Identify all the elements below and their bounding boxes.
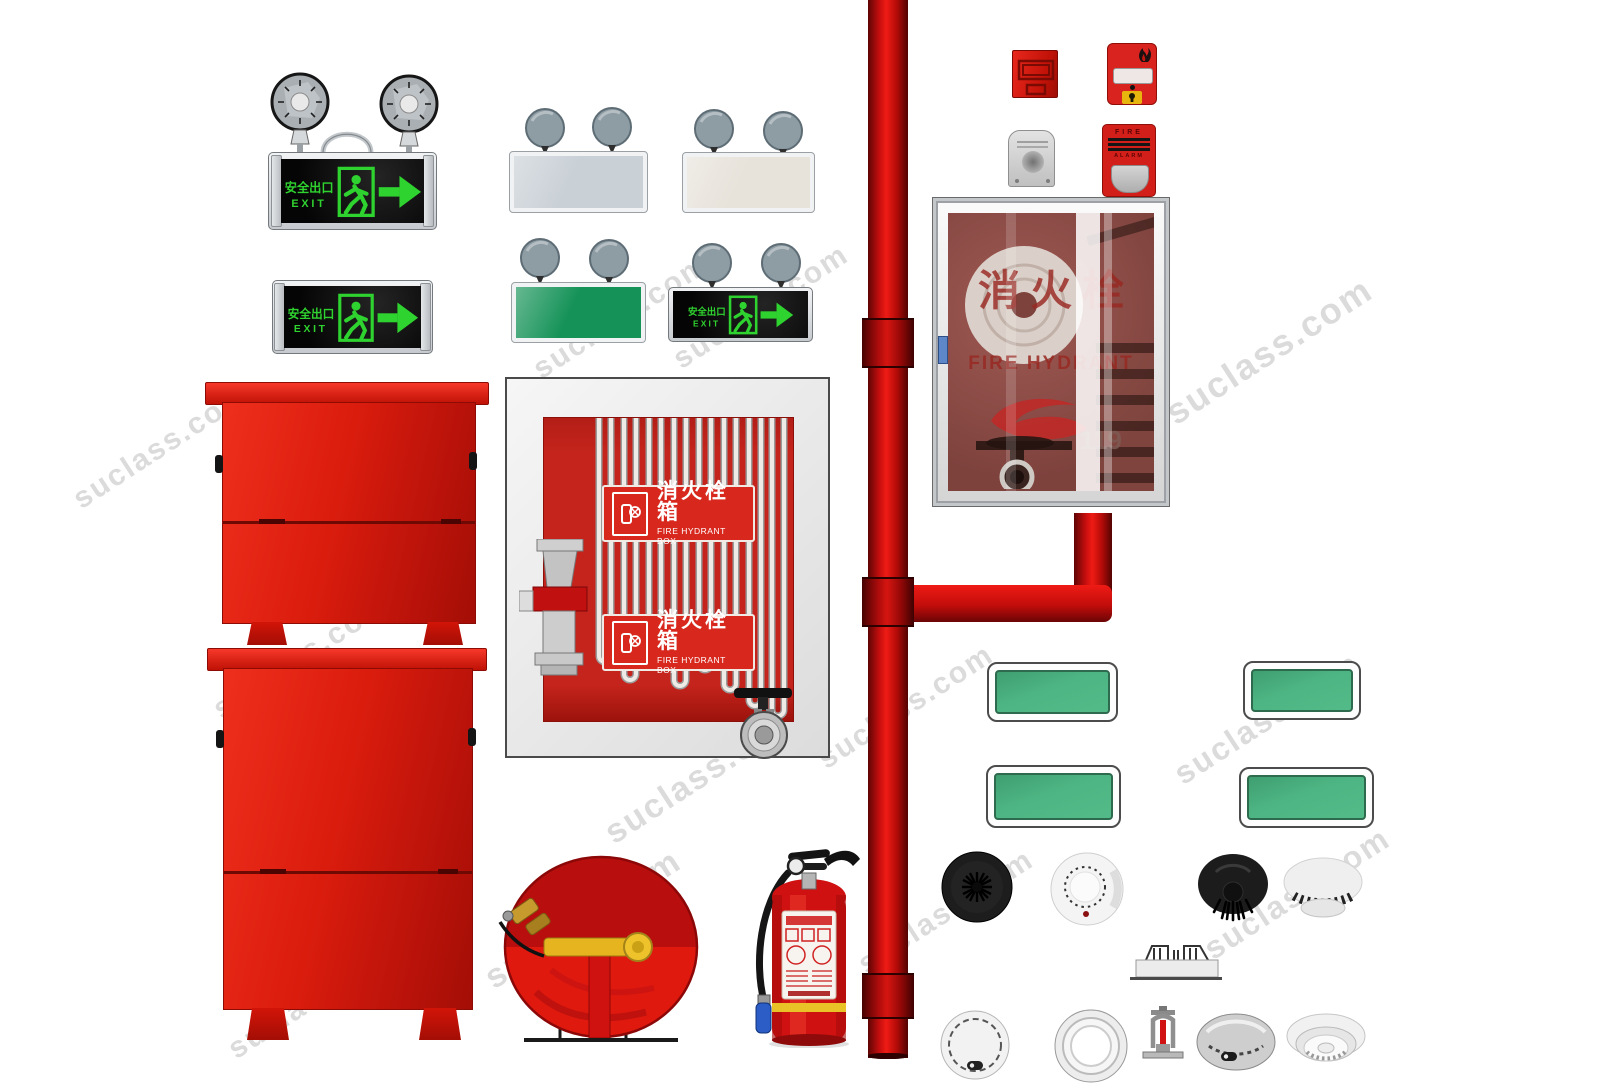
concealed-sprinkler-plate [1128, 938, 1224, 984]
twin-spotlight-exit-light: 安全出口 EXIT [268, 152, 437, 230]
hydrant-label-icon [612, 492, 648, 536]
lamp-dome-icon [523, 107, 567, 157]
panel-sheen [516, 287, 641, 338]
extinguisher-glyph-icon [619, 499, 641, 529]
strobe-fire-label: FIRE [1103, 129, 1155, 136]
pipe-coupling [862, 318, 914, 368]
watermark: suclass.com [1158, 269, 1381, 434]
twin-lamp-panel-gray [510, 152, 647, 212]
fire-hose-reel [496, 852, 706, 1058]
cabinet-handle [215, 455, 223, 473]
glass-cabinet-interior: 消火栓 FIRE HYDRANT 119 [948, 213, 1154, 491]
red-fire-cabinet-tall [207, 648, 485, 1040]
smoke-detector-round [939, 1009, 1011, 1081]
sign-endcap [423, 155, 434, 227]
pipe-branch-horizontal [880, 585, 1112, 622]
lamp-dome-icon [587, 238, 631, 288]
fire-alarm-strobe: FIRE ALARM [1102, 124, 1156, 197]
exit-sign-en: EXIT [291, 198, 326, 210]
cabinet-hinge [441, 519, 461, 524]
strobe-lens [1111, 165, 1149, 193]
green-sign-face [1251, 669, 1353, 712]
lamp-dome-icon [690, 242, 734, 292]
green-blank-sign [1239, 767, 1374, 828]
exit-sign-cn: 安全出口 [285, 180, 334, 195]
cabinet-hinge [260, 869, 286, 874]
smoke-detector-side-view [1282, 856, 1364, 922]
cabinet-leg [247, 1008, 289, 1040]
pipe-coupling [862, 973, 914, 1019]
smoke-detector-rings [1054, 1009, 1128, 1083]
cabinet-handle [216, 730, 224, 748]
cabinet-hinge [438, 869, 458, 874]
strobe-slot [1108, 148, 1150, 151]
hydrant-label-text: 消火栓箱 FIRE HYDRANT BOX [657, 481, 745, 546]
sign-endcap [420, 283, 431, 351]
exit-sign-face: 安全出口 EXIT [673, 291, 808, 338]
cabinet-hinge [259, 519, 285, 524]
hydrant-box-label: 消火栓箱 FIRE HYDRANT BOX [602, 485, 755, 542]
extinguisher-glyph-icon [619, 628, 641, 658]
green-blank-sign [986, 765, 1121, 828]
glass-reflection [1006, 213, 1016, 491]
fire-hydrant-glass-cabinet: 消火栓 FIRE HYDRANT 119 [932, 197, 1170, 507]
green-sign-face [994, 773, 1113, 820]
flame-icon [1132, 46, 1154, 64]
hydrant-box-label: 消火栓箱 FIRE HYDRANT BOX [602, 614, 755, 671]
green-blank-sign [1243, 661, 1361, 720]
hydrant-cabinet-cn: 消火栓 [948, 257, 1154, 318]
cabinet-handle [468, 728, 476, 746]
cover-emblem [1022, 151, 1044, 173]
green-blank-sign [987, 662, 1118, 722]
exit-sign-face: 安全出口 EXIT [284, 286, 421, 348]
lamp-dome-icon [759, 242, 803, 292]
lamp-dome-icon [518, 237, 562, 287]
fire-riser-pipe [868, 0, 908, 1058]
exit-sign-cn: 安全出口 [688, 306, 726, 317]
upright-sprinkler [1139, 1006, 1187, 1064]
hydrant-cabinet-en: FIRE HYDRANT [948, 353, 1154, 375]
cabinet-body [222, 402, 476, 624]
panel-sheen [687, 157, 810, 208]
reset-key-button [1122, 91, 1142, 104]
call-point-window [1113, 68, 1153, 84]
smoke-detector-dome-gray [1195, 1012, 1277, 1072]
glass-reflection [1076, 213, 1100, 491]
fire-alarm-pull-station [1107, 43, 1157, 105]
green-sign-face [1247, 775, 1366, 820]
cabinet-leg [419, 1008, 461, 1040]
cabinet-latch [938, 336, 948, 364]
pipe-end-cap [868, 1053, 908, 1059]
twin-lamp-panel-green [512, 283, 645, 342]
lamp-dome-icon [590, 106, 634, 156]
pendant-sprinkler-black [1196, 852, 1270, 924]
exit-sign-en: EXIT [294, 324, 328, 335]
panel-sheen [514, 156, 643, 208]
exit-sign-face: 安全出口 EXIT [281, 159, 424, 223]
exit-pictogram: 安全出口 EXIT [281, 159, 422, 221]
twin-lamp-panel-ivory [683, 153, 814, 212]
hydrant-label-text: 消火栓箱 FIRE HYDRANT BOX [657, 610, 745, 675]
pipe-tee-coupling [862, 577, 914, 627]
cabinet-leg [247, 622, 287, 645]
spotlight-lamp-icon [377, 72, 441, 164]
cover-text-line [1017, 146, 1048, 148]
call-point-led [1130, 85, 1135, 90]
hydrant-box-cn: 消火栓箱 [657, 481, 745, 523]
green-sign-face [995, 670, 1110, 714]
exit-pictogram: 安全出口 EXIT [673, 291, 806, 336]
smoke-detector-tiered [1285, 1008, 1367, 1078]
manual-call-point [1012, 50, 1058, 98]
cabinet-leg [423, 622, 463, 645]
fire-equipment-asset-board: suclass.com suclass.com suclass.com sucl… [0, 0, 1600, 1090]
hydrant-box-en: FIRE HYDRANT BOX [657, 655, 745, 675]
lamp-dome-icon [692, 108, 736, 158]
exit-sign-cn: 安全出口 [288, 307, 335, 321]
cover-text-line [1017, 141, 1048, 143]
cabinet-body [223, 668, 473, 1010]
strobe-slot [1108, 143, 1150, 146]
hydrant-box-cn: 消火栓箱 [657, 610, 745, 652]
carry-handle-icon [318, 124, 376, 154]
smoke-detector-white [1049, 851, 1125, 927]
hydrant-box-en: FIRE HYDRANT BOX [657, 526, 745, 546]
exit-sign-en: EXIT [693, 319, 720, 329]
twin-lamp-exit-sign: 安全出口 EXIT [668, 287, 813, 342]
fire-extinguisher [744, 833, 864, 1048]
fire-hydrant-box: 消火栓箱 FIRE HYDRANT BOX 消火栓箱 FIRE HYDRANT … [505, 377, 830, 758]
strobe-slot [1108, 138, 1150, 141]
key-glyph-icon [1122, 91, 1142, 104]
red-fire-cabinet-small [205, 372, 487, 645]
hydrant-valve-icon [519, 539, 591, 681]
cover-screw [1046, 179, 1050, 183]
call-point-protective-cover [1008, 130, 1055, 187]
exit-sign: 安全出口 EXIT [272, 280, 433, 354]
strobe-alarm-label: ALARM [1103, 153, 1155, 159]
call-point-face-icon [1013, 51, 1059, 99]
cover-screw [1015, 179, 1019, 183]
smoke-detector-black [940, 850, 1014, 924]
cabinet-handle [469, 452, 477, 470]
exit-pictogram: 安全出口 EXIT [284, 286, 419, 346]
glass-reflection [1104, 213, 1112, 491]
hydrant-label-icon [612, 621, 648, 665]
hose-coupling-icon [739, 709, 789, 759]
